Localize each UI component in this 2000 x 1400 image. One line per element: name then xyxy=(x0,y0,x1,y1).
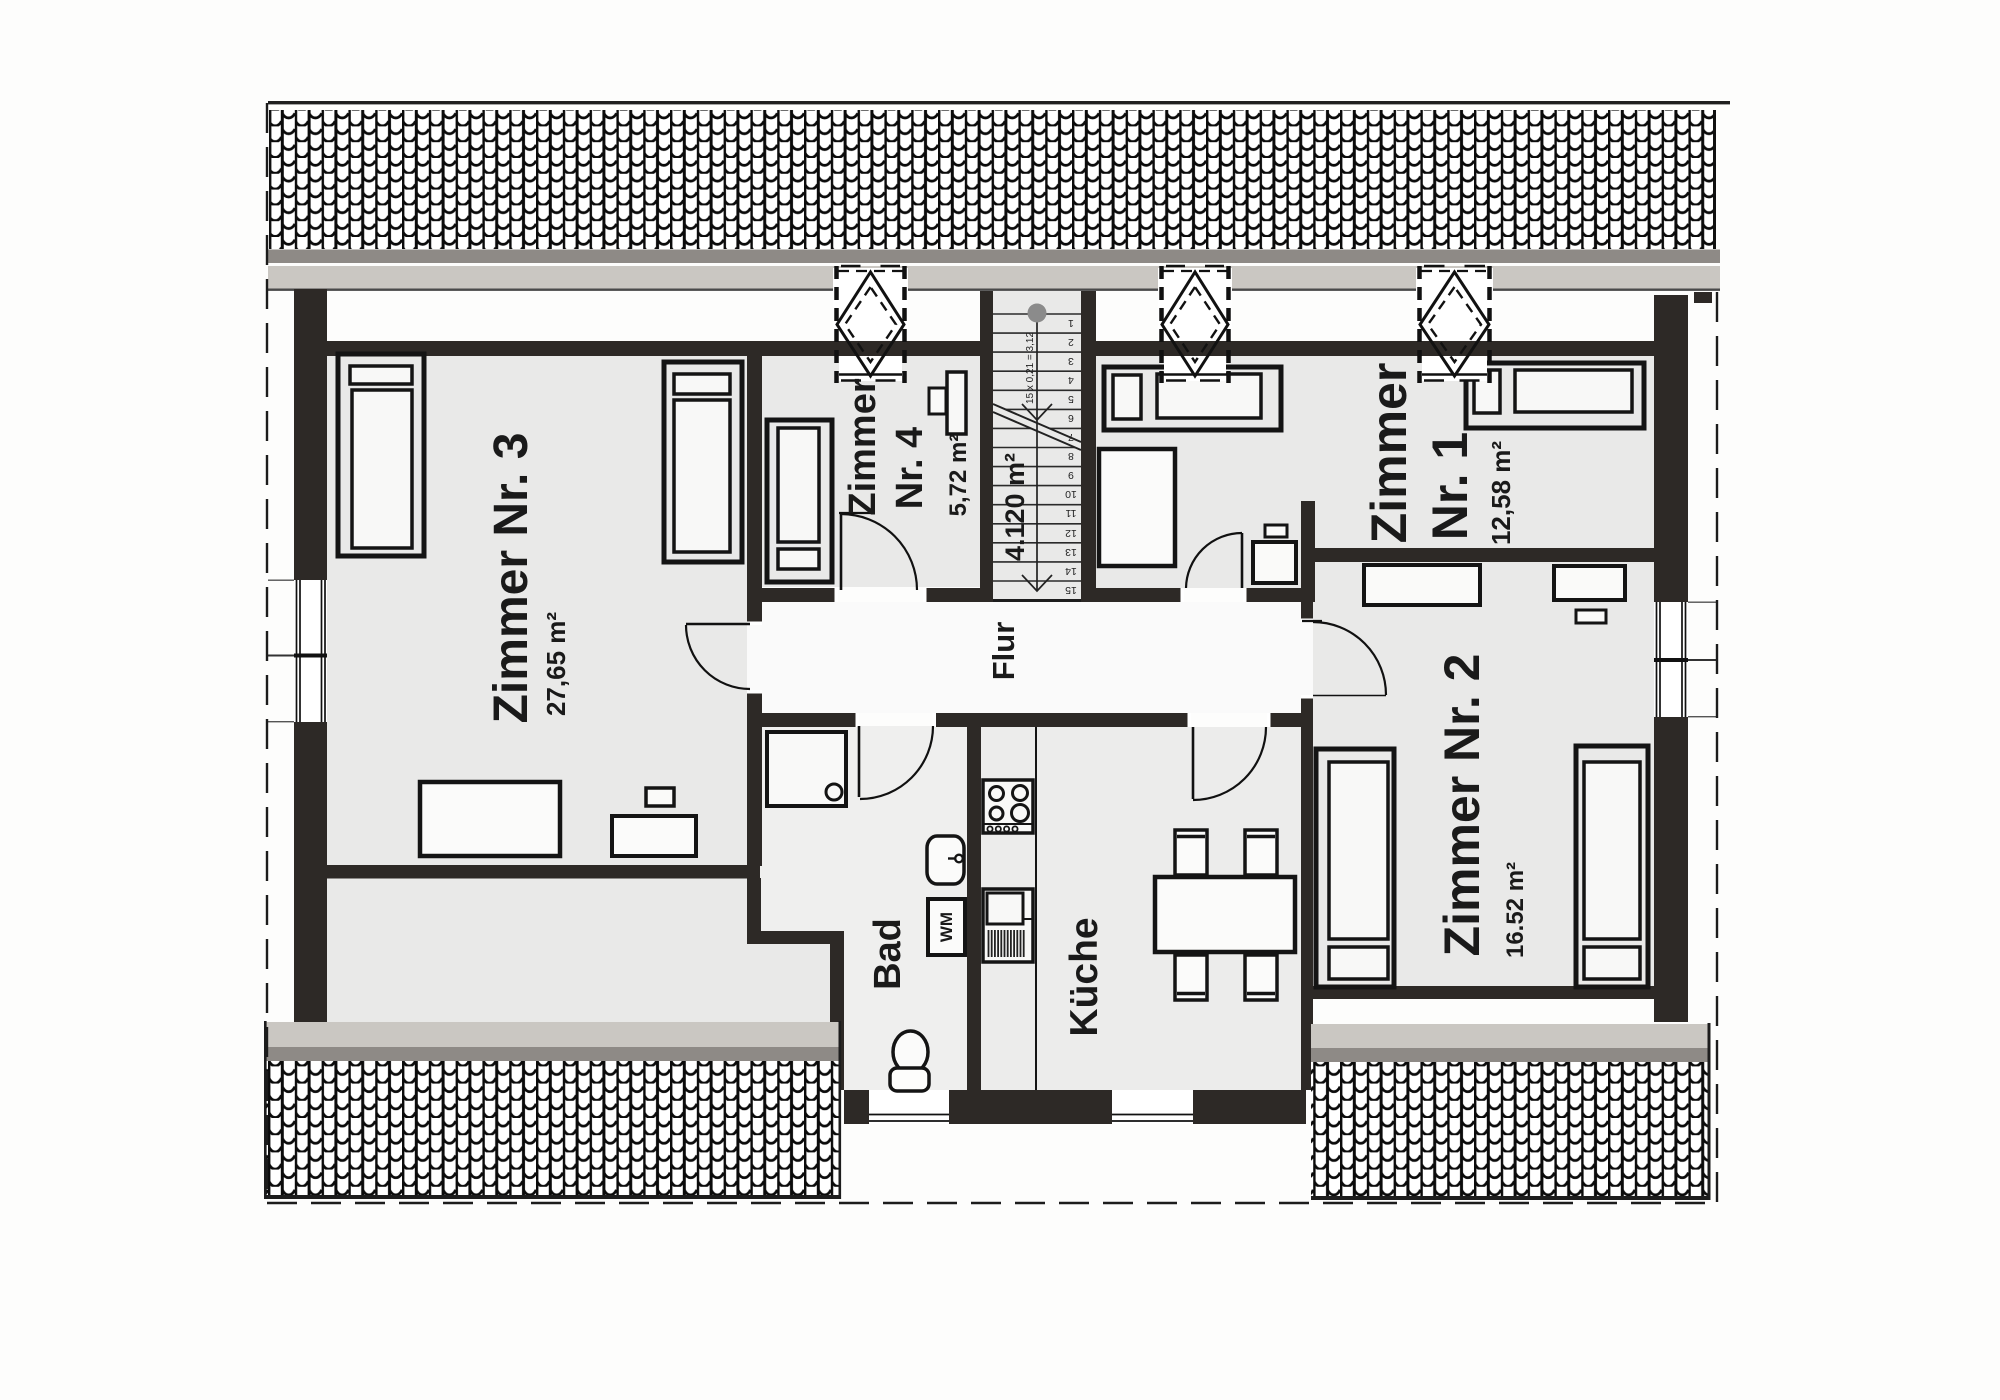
svg-text:9: 9 xyxy=(1068,469,1074,481)
svg-text:10: 10 xyxy=(1065,488,1077,500)
svg-text:4.120 m²: 4.120 m² xyxy=(1000,453,1030,561)
svg-text:Nr. 1: Nr. 1 xyxy=(1422,432,1478,540)
svg-text:Bad: Bad xyxy=(867,918,909,990)
svg-text:WM: WM xyxy=(937,912,956,942)
svg-text:Zimmer: Zimmer xyxy=(842,378,884,515)
svg-text:2: 2 xyxy=(1068,336,1074,348)
svg-text:15 x 0,21 = 3,12: 15 x 0,21 = 3,12 xyxy=(1025,332,1036,404)
svg-text:3: 3 xyxy=(1068,355,1074,367)
svg-text:8: 8 xyxy=(1068,450,1074,462)
svg-text:Zimmer Nr. 3: Zimmer Nr. 3 xyxy=(485,433,538,724)
svg-text:12,58 m²: 12,58 m² xyxy=(1486,441,1516,545)
svg-text:Nr. 4: Nr. 4 xyxy=(889,427,931,509)
svg-text:27,65 m²: 27,65 m² xyxy=(541,612,571,716)
svg-text:16.52 m²: 16.52 m² xyxy=(1502,862,1529,958)
svg-text:5,72 m²: 5,72 m² xyxy=(945,434,972,517)
svg-text:Zimmer Nr. 2: Zimmer Nr. 2 xyxy=(1434,654,1490,957)
svg-text:Zimmer: Zimmer xyxy=(1361,363,1417,544)
svg-text:Flur: Flur xyxy=(986,622,1021,681)
svg-text:6: 6 xyxy=(1068,412,1074,424)
svg-text:Küche: Küche xyxy=(1063,917,1106,1036)
svg-text:15: 15 xyxy=(1065,584,1077,596)
svg-text:13: 13 xyxy=(1065,546,1077,558)
svg-text:4: 4 xyxy=(1068,374,1074,386)
svg-text:14: 14 xyxy=(1065,565,1077,577)
svg-text:1: 1 xyxy=(1068,317,1074,329)
svg-text:12: 12 xyxy=(1065,527,1077,539)
svg-text:5: 5 xyxy=(1068,393,1074,405)
svg-text:11: 11 xyxy=(1065,507,1076,519)
svg-text:7: 7 xyxy=(1068,431,1074,443)
